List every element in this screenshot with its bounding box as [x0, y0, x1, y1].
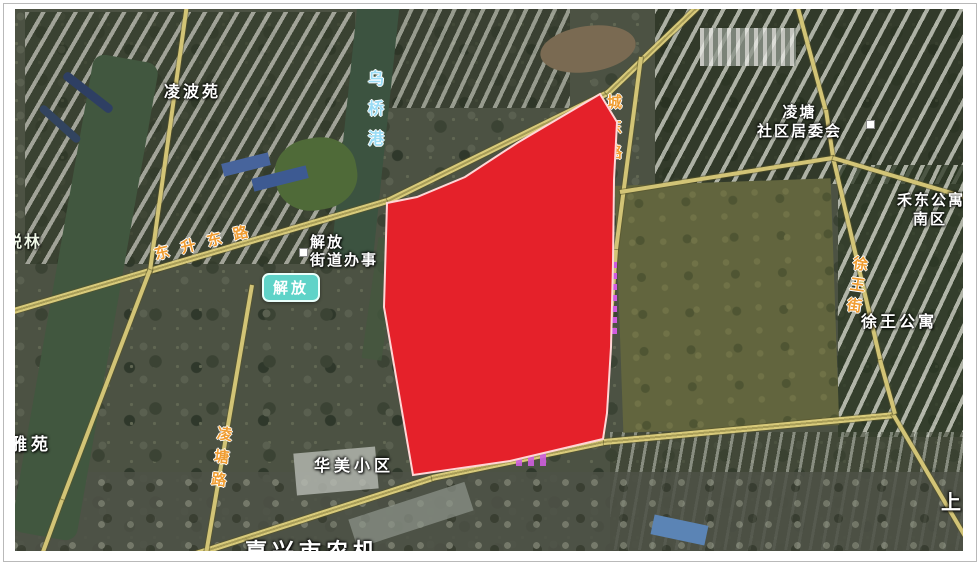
label-jiefang-office: 解放 街道办事 [310, 233, 378, 269]
poi-marker-jiefang-office [299, 248, 308, 257]
map-world: 城东路 凌波苑 乌桥港 东升东路 解放 街道办事 解放 悦林 雅苑 凌塘路 华美… [15, 9, 963, 551]
highlight-overlay [15, 9, 963, 551]
poi-marker-lingtang-shequ [866, 120, 875, 129]
highlighted-parcel [384, 94, 617, 475]
label-wuqiaogang: 乌桥港 [362, 70, 386, 160]
label-yuelin: 悦林 [15, 228, 42, 252]
screenshot-frame: 城东路 凌波苑 乌桥港 东升东路 解放 街道办事 解放 悦林 雅苑 凌塘路 华美… [0, 0, 980, 565]
label-lingtang-shequ: 凌塘 社区居委会 [757, 103, 842, 141]
label-jiaxing-nongji: 嘉兴市农机 [245, 534, 380, 551]
label-shang: 上 [941, 486, 963, 515]
label-huamei-xiaoqu: 华美小区 [314, 452, 394, 476]
label-xuwang-gongyu: 徐王公寓 [861, 308, 937, 332]
area-badge-jiefang: 解放 [262, 273, 320, 302]
satellite-map[interactable]: 城东路 凌波苑 乌桥港 东升东路 解放 街道办事 解放 悦林 雅苑 凌塘路 华美… [15, 9, 963, 551]
label-yayuan: 雅苑 [15, 430, 52, 455]
label-lingboyuan: 凌波苑 [164, 78, 221, 102]
label-hedong-gongyu: 禾东公寓 南区 [897, 191, 963, 229]
